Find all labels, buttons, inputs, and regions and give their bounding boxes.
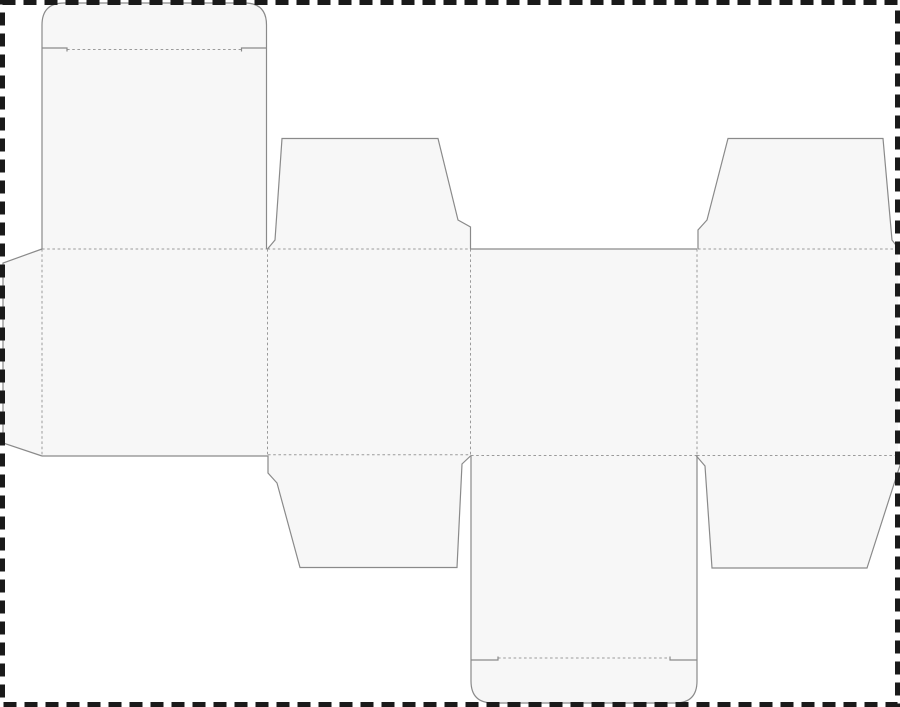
lid-panel-and-tuck-fill (42, 3, 267, 249)
bottom-dust-flap-left-fill (268, 456, 471, 568)
top-dust-flap-right-fill (698, 139, 899, 250)
box-dieline-drawing (0, 0, 900, 707)
dieline-page (0, 0, 900, 707)
glue-tab-fill (3, 249, 42, 456)
bottom-dust-flap-right-fill (696, 456, 900, 569)
top-dust-flap-left-fill (268, 139, 471, 250)
bottom-panel-and-tuck-fill (471, 456, 697, 704)
body-panels-band-fill (42, 249, 898, 456)
